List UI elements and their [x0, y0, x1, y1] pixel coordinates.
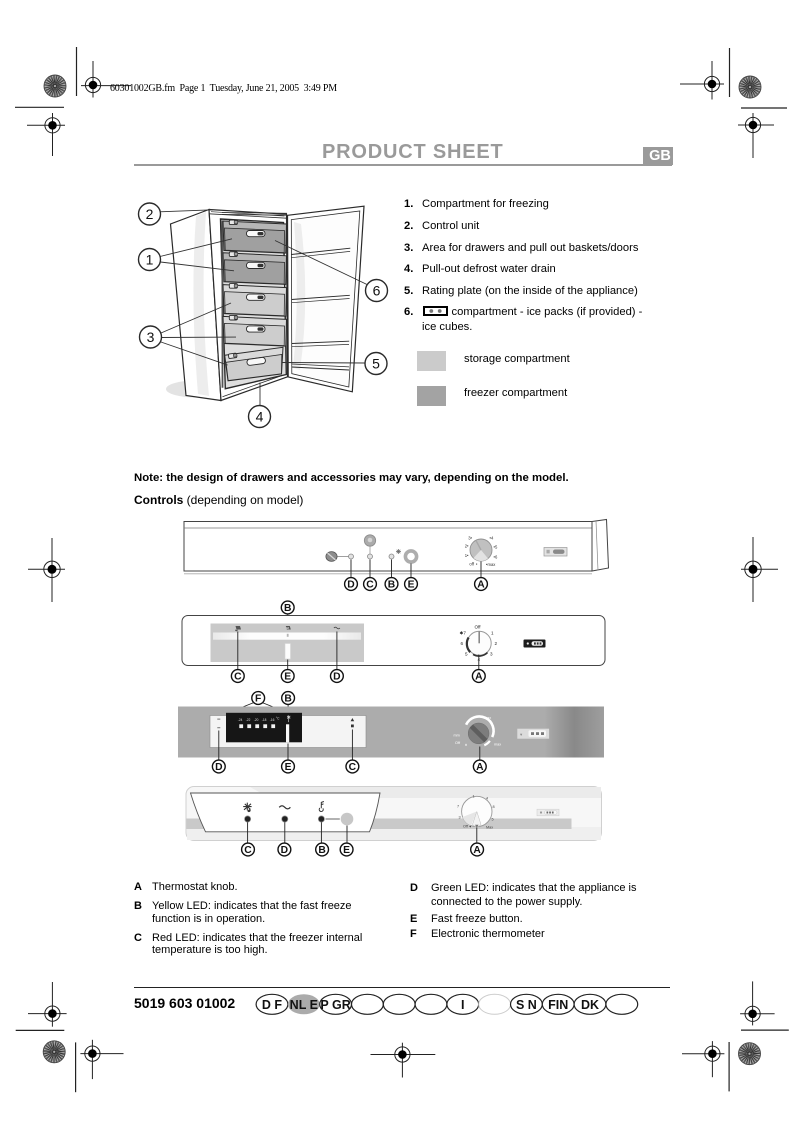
- svg-text:5: 5: [372, 356, 380, 372]
- svg-text:Off: Off: [475, 625, 482, 630]
- svg-text:3•: 3•: [468, 536, 472, 541]
- svg-text:1: 1: [473, 795, 475, 799]
- svg-text:C: C: [234, 672, 242, 683]
- svg-text:✱7: ✱7: [460, 631, 467, 636]
- svg-text:•4: •4: [490, 536, 494, 541]
- svg-text:P GR: P GR: [320, 998, 350, 1012]
- svg-text:max: max: [484, 716, 491, 720]
- svg-text:4: 4: [486, 797, 488, 801]
- svg-text:5: 5: [465, 652, 468, 657]
- svg-text:3: 3: [147, 329, 155, 345]
- svg-text:Off ◂: Off ◂: [463, 825, 471, 829]
- svg-text:3: 3: [459, 816, 461, 820]
- svg-text:E: E: [343, 845, 350, 856]
- svg-text:C: C: [349, 762, 357, 773]
- svg-text:I: I: [461, 998, 464, 1012]
- svg-text:-24: -24: [238, 718, 243, 722]
- svg-text:B: B: [284, 603, 291, 614]
- svg-text:D: D: [215, 762, 222, 773]
- svg-text:2: 2: [146, 206, 154, 222]
- svg-text:A: A: [476, 762, 484, 773]
- svg-text:E: E: [284, 672, 291, 683]
- svg-text:D: D: [347, 580, 354, 591]
- svg-text:A: A: [477, 580, 485, 591]
- svg-text:8: 8: [493, 805, 495, 809]
- svg-text:D F: D F: [262, 998, 283, 1012]
- svg-text:•5: •5: [494, 545, 498, 550]
- svg-text:B: B: [318, 845, 325, 856]
- svg-text:F: F: [255, 694, 261, 705]
- svg-text:D: D: [333, 672, 340, 683]
- svg-text:E: E: [285, 762, 292, 773]
- svg-text:A: A: [473, 845, 481, 856]
- svg-text:7: 7: [457, 805, 459, 809]
- svg-text:DK: DK: [581, 998, 599, 1012]
- svg-text:-18: -18: [262, 718, 267, 722]
- svg-text:-16: -16: [270, 718, 275, 722]
- svg-text:-22: -22: [246, 718, 251, 722]
- svg-text:4: 4: [256, 409, 264, 425]
- svg-text:2: 2: [495, 641, 498, 646]
- svg-text:B: B: [284, 694, 291, 705]
- svg-text:5: 5: [492, 818, 494, 822]
- svg-text:Max: Max: [486, 826, 493, 830]
- svg-text:6: 6: [461, 641, 464, 646]
- svg-text:1•: 1•: [465, 553, 469, 558]
- svg-text:C: C: [244, 845, 252, 856]
- svg-text:B: B: [388, 580, 395, 591]
- svg-text:2•: 2•: [465, 544, 469, 549]
- svg-text:NL E: NL E: [290, 998, 318, 1012]
- svg-text:FIN: FIN: [548, 998, 568, 1012]
- svg-text:max: max: [494, 743, 501, 747]
- svg-text:S N: S N: [516, 998, 537, 1012]
- svg-text:6: 6: [373, 283, 381, 299]
- svg-text:▴: ▴: [465, 743, 467, 747]
- svg-text:D: D: [281, 845, 288, 856]
- svg-text:mm: mm: [454, 734, 460, 738]
- svg-text:1: 1: [146, 252, 154, 268]
- svg-text:-20: -20: [254, 718, 259, 722]
- svg-text:3: 3: [490, 652, 493, 657]
- svg-text:A: A: [475, 672, 483, 683]
- svg-text:C: C: [366, 580, 374, 591]
- svg-text:•max: •max: [486, 562, 496, 567]
- svg-text:•6: •6: [494, 555, 498, 560]
- svg-text:E: E: [408, 580, 415, 591]
- svg-text:1: 1: [491, 631, 494, 636]
